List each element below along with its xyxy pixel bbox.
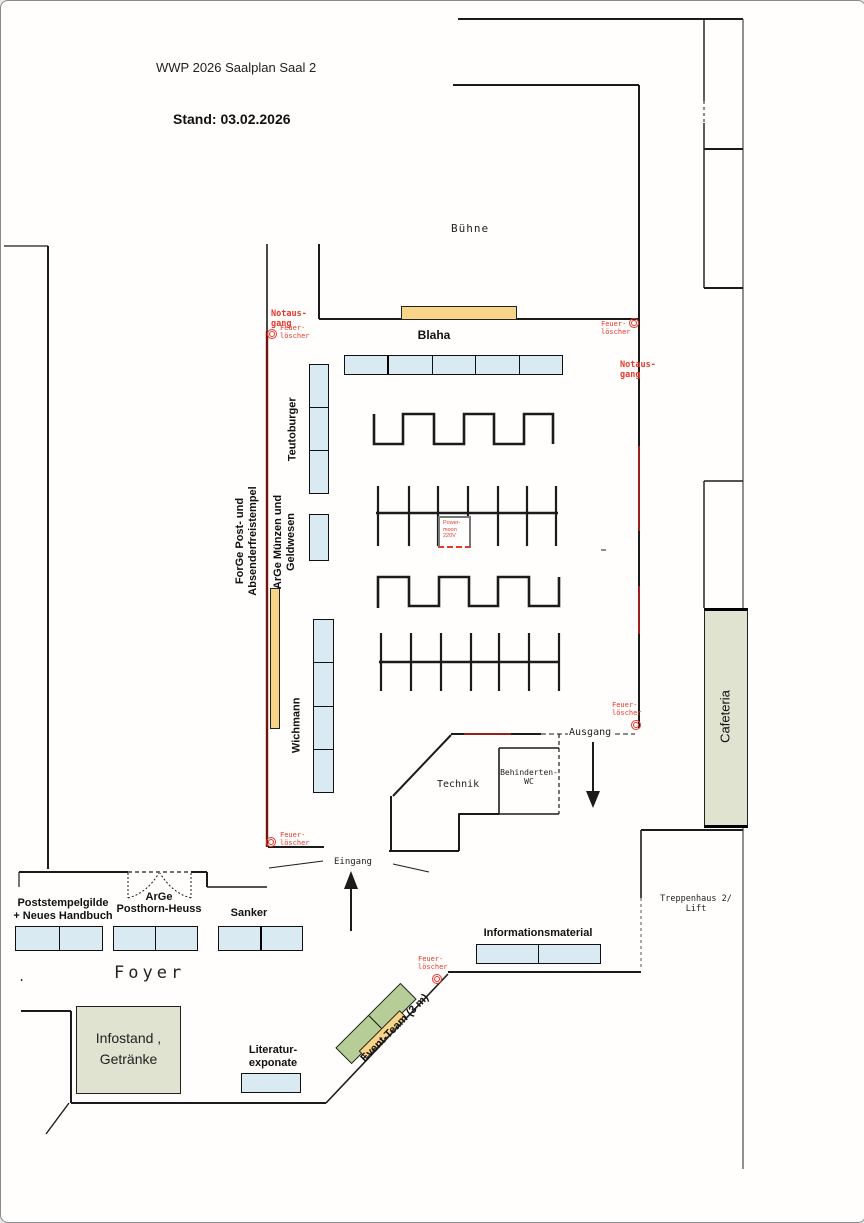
cafeteria-label: Cafeteria xyxy=(719,616,734,816)
poststempelgilde-table xyxy=(15,926,103,951)
blaha-label: Blaha xyxy=(404,329,464,343)
informationsmaterial-table xyxy=(476,944,601,964)
power-supply-box: Power- moon 220V xyxy=(438,516,471,548)
entrance-label: Eingang xyxy=(334,857,372,867)
poststempelgilde-label: Poststempelgilde + Neues Handbuch xyxy=(7,897,119,923)
arge-muenzen-table xyxy=(309,514,329,561)
emergency-exit-right-label: Notaus- gang xyxy=(620,360,656,380)
literatur-label: Literatur- exponate xyxy=(243,1044,303,1070)
stage-front-stand xyxy=(401,306,517,320)
room-technik-label: Technik xyxy=(437,779,479,791)
extinguisher-bottom-center-label: Feuer- löscher xyxy=(418,955,448,971)
extinguisher-icon xyxy=(266,837,276,847)
room-stairs-label: Treppenhaus 2/ Lift xyxy=(651,894,741,914)
extinguisher-mid-right-label: Feuer- löscher xyxy=(612,701,642,717)
arge-posthorn-table xyxy=(113,926,198,951)
arge-muenzen-label: ArGe Münzen und Geldwesen xyxy=(272,467,298,617)
arge-posthorn-label: ArGe Posthorn-Heuss xyxy=(109,891,209,915)
room-stage-label: Bühne xyxy=(451,223,489,236)
extinguisher-top-right-label: Feuer- löscher xyxy=(601,320,631,336)
extinguisher-top-left-label: Feuer- löscher xyxy=(280,324,310,340)
blaha-table xyxy=(344,355,563,375)
room-wc-label: Behinderten- WC xyxy=(497,768,561,786)
wichmann-table xyxy=(313,619,334,793)
teutoburger-table xyxy=(309,364,329,494)
page-title: WWP 2026 Saalplan Saal 2 xyxy=(156,61,316,76)
extinguisher-icon xyxy=(267,329,277,339)
forge-label: ForGe Post- und Absenderfreistempel xyxy=(234,466,260,616)
date-line: Stand: 03.02.2026 xyxy=(173,111,291,127)
extinguisher-icon xyxy=(631,720,641,730)
infostand-zone: Infostand , Getränke xyxy=(76,1006,181,1094)
sanker-table xyxy=(218,926,303,951)
floorplan-page: WWP 2026 Saalplan Saal 2 Stand: 03.02.20… xyxy=(0,0,864,1223)
wichmann-label: Wichmann xyxy=(291,670,304,780)
room-foyer-label: Foyer xyxy=(114,964,185,984)
sanker-label: Sanker xyxy=(218,907,280,920)
exit-label: Ausgang xyxy=(569,727,611,739)
extinguisher-bottom-left-label: Feuer- löscher xyxy=(280,831,310,847)
foyer-dot-mark: . xyxy=(18,971,25,985)
informationsmaterial-label: Informationsmaterial xyxy=(458,927,618,940)
literatur-table xyxy=(241,1073,301,1093)
